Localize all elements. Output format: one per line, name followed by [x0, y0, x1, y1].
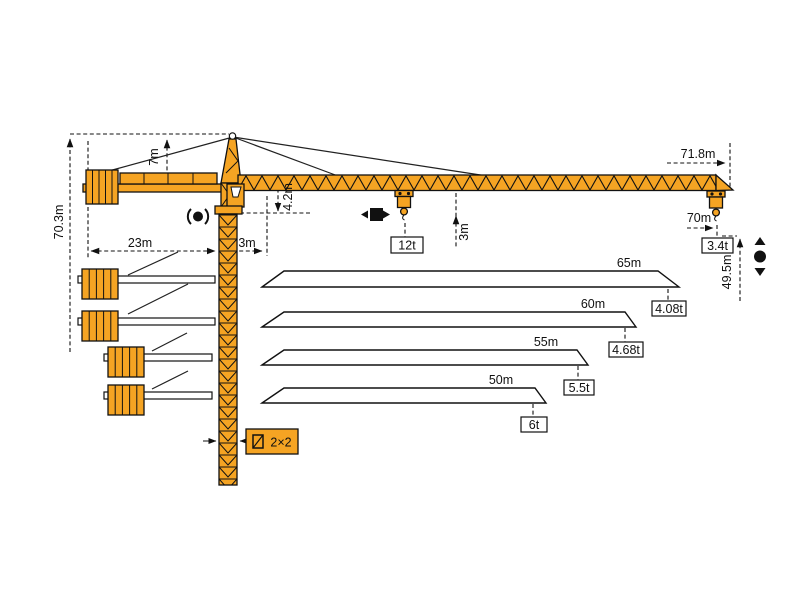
label-jib-55m: 55m [534, 335, 558, 349]
jib-outline-50m [262, 388, 546, 403]
slewing-arc-right [205, 209, 208, 224]
counterweight-options [78, 252, 215, 415]
label-load-60m: 4.68t [612, 343, 640, 357]
trolley-wheel [407, 192, 410, 195]
hook-block [710, 197, 723, 208]
slewing-icon [188, 209, 208, 224]
apex-pivot [229, 133, 235, 139]
tower-mast-pattern [219, 214, 237, 485]
label-jib-60m: 60m [581, 297, 605, 311]
trolley-mid [395, 191, 413, 221]
slewing-platform [215, 206, 242, 214]
cw-row1-tie [128, 252, 178, 275]
label-heel-drop: 4.2m [281, 183, 295, 211]
hook-block [398, 197, 411, 208]
trolley-wheel [398, 192, 401, 195]
label-slew-offset: 3m [238, 236, 255, 250]
counterweight-block [108, 347, 144, 377]
hook-tip [403, 215, 405, 220]
down-arrow-icon [755, 268, 766, 276]
jib-outline-60m [262, 312, 636, 327]
label-hook-height: 49.5m [720, 255, 734, 290]
hook [713, 209, 720, 216]
trolley-frame [395, 191, 413, 197]
jib-truss-pattern [238, 175, 716, 191]
trolley-square-icon [370, 208, 383, 221]
label-mast-section: 2×2 [270, 436, 291, 450]
label-counterjib-radius: 23m [128, 236, 152, 250]
cw-row2-tie [128, 284, 188, 314]
counterweight-block [82, 311, 118, 341]
hoist-dot [754, 251, 766, 263]
cw-row3-tie [152, 333, 187, 351]
jib-outline-55m [262, 350, 588, 365]
label-tip-load: 3.4t [707, 239, 728, 253]
slewing-arc-left [188, 209, 191, 224]
label-under-jib: 3m [457, 223, 471, 240]
trolley-frame [707, 191, 725, 197]
diagram-canvas: 70.3m 7m 23m 3m 4.2m 3m 12t 71.8m 70m 3.… [0, 0, 800, 600]
value-boxes [246, 237, 733, 454]
label-hook-radius: 70m [687, 211, 711, 225]
slewing-dot [193, 212, 203, 222]
counterjib-counterweight [86, 170, 118, 204]
label-total-height: 70.3m [52, 205, 66, 240]
counterjib-tie [105, 137, 233, 172]
jib-tie-inner [233, 137, 338, 176]
label-apex-drop: 7m [147, 148, 161, 165]
crane-dimension-diagram: 70.3m 7m 23m 3m 4.2m 3m 12t 71.8m 70m 3.… [0, 0, 800, 600]
tie-rods [105, 137, 487, 176]
trolley-travel-icon [361, 208, 390, 221]
counterweight-block [82, 269, 118, 299]
trolley-wheel [719, 192, 722, 195]
cw-row4-tie [152, 371, 188, 389]
counterweight-block [108, 385, 144, 415]
label-load-55m: 5.5t [569, 381, 590, 395]
label-load-50m: 6t [529, 418, 540, 432]
trolley-wheel [710, 192, 713, 195]
label-jib-65m: 65m [617, 256, 641, 270]
jib-outline-65m [262, 271, 679, 287]
up-arrow-icon [755, 237, 766, 245]
hook-tip [715, 216, 717, 221]
jib-tie-outer [233, 137, 487, 176]
crane-structure [83, 133, 733, 485]
jib-length-options [262, 271, 679, 403]
label-max-load: 12t [398, 239, 416, 253]
label-load-65m: 4.08t [655, 302, 683, 316]
label-tip-radius: 71.8m [681, 147, 716, 161]
hoist-icon [754, 237, 766, 276]
label-jib-50m: 50m [489, 373, 513, 387]
hook [401, 208, 408, 215]
motion-symbols [188, 208, 766, 276]
right-arrow-icon [383, 211, 390, 219]
left-arrow-icon [361, 211, 368, 219]
